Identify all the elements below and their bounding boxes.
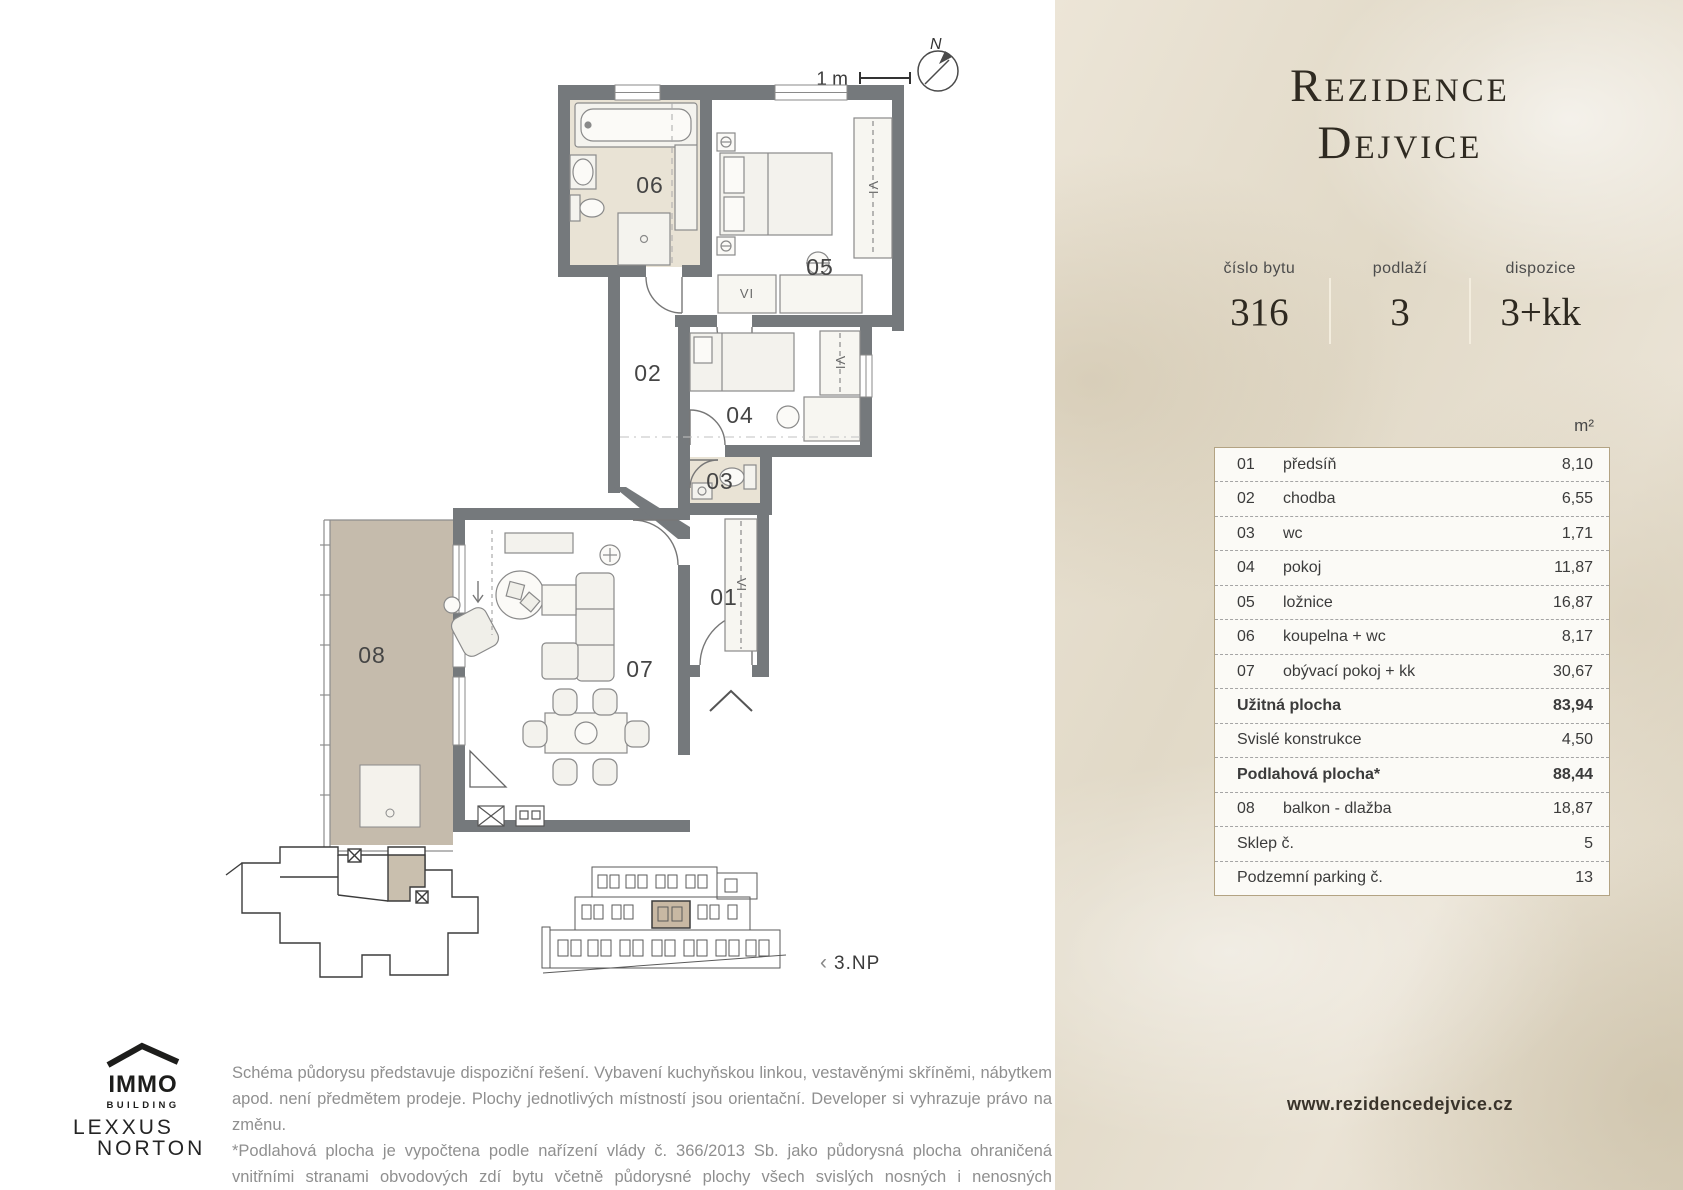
area-table-row: Svislé konstrukce4,50 xyxy=(1215,724,1609,758)
project-title: Rezidence Dejvice xyxy=(1190,58,1610,173)
disclaimer-paragraph-1: Schéma půdorysu představuje dispoziční ř… xyxy=(232,1060,1052,1138)
area-table-row: 02chodba6,55 xyxy=(1215,482,1609,516)
room-number: 04 xyxy=(1237,559,1283,577)
room-label-07: 07 xyxy=(626,656,654,682)
room-area-value: 30,67 xyxy=(1553,663,1593,681)
area-table-row: Podlahová plocha*88,44 xyxy=(1215,758,1609,792)
room-name: chodba xyxy=(1283,490,1336,508)
living-room-furniture xyxy=(444,533,649,785)
floor-value: 3 xyxy=(1331,290,1470,335)
disclaimer-paragraph-2: *Podlahová plocha je vypočtena podle nař… xyxy=(232,1138,1052,1190)
room-area-value: 8,17 xyxy=(1562,628,1593,646)
room-name: Sklep č. xyxy=(1237,835,1294,853)
floor-plan: 1 m N xyxy=(220,25,980,985)
area-table-row: 06koupelna + wc8,17 xyxy=(1215,620,1609,654)
area-table-row: Podzemní parking č.13 xyxy=(1215,862,1609,895)
room-area-value: 6,55 xyxy=(1562,490,1593,508)
room-area-value: 5 xyxy=(1584,835,1593,853)
roof-icon xyxy=(105,1042,181,1068)
area-table-row: 01předsíň8,10 xyxy=(1215,448,1609,482)
section-triangle xyxy=(470,751,506,787)
area-table-row: 04pokoj11,87 xyxy=(1215,551,1609,585)
immo-logo-name: IMMO xyxy=(98,1071,188,1099)
room-name: Podlahová plocha* xyxy=(1237,766,1380,784)
room-label-06: 06 xyxy=(636,172,664,198)
room-number: 01 xyxy=(1237,456,1283,474)
apartment-info-row: číslo bytu 316 podlaží 3 dispozice 3+kk xyxy=(1190,260,1610,344)
room-name: balkon - dlažba xyxy=(1283,800,1392,818)
layout-value: 3+kk xyxy=(1471,290,1610,335)
lexxus-logo-line2: NORTON xyxy=(97,1137,205,1161)
room-label-03: 03 xyxy=(706,468,734,494)
floorplate-overview xyxy=(226,847,478,977)
disclaimer-text: Schéma půdorysu představuje dispoziční ř… xyxy=(232,1060,1052,1190)
immo-logo-tagline: BUILDING xyxy=(98,1100,188,1111)
area-table-row: Užitná plocha83,94 xyxy=(1215,689,1609,723)
building-elevation xyxy=(542,867,786,973)
floor-block: podlaží 3 xyxy=(1331,260,1470,344)
room-area-value: 13 xyxy=(1575,869,1593,887)
room-number: 08 xyxy=(1237,800,1283,818)
room-name: Užitná plocha xyxy=(1237,697,1341,715)
direction-arrow xyxy=(473,581,483,602)
area-table: 01předsíň8,1002chodba6,5503wc1,7104pokoj… xyxy=(1214,447,1610,896)
room-area-value: 18,87 xyxy=(1553,800,1593,818)
apartment-number-label: číslo bytu xyxy=(1190,260,1329,278)
room-name: koupelna + wc xyxy=(1283,628,1386,646)
room-name: obývací pokoj + kk xyxy=(1283,663,1415,681)
room-name: ložnice xyxy=(1283,594,1333,612)
immo-building-logo: IMMO BUILDING xyxy=(98,1042,188,1111)
area-table-row: 05ložnice16,87 xyxy=(1215,586,1609,620)
lexxus-norton-logo: LEXXUS NORTON xyxy=(73,1116,205,1161)
area-table-row: 08balkon - dlažba18,87 xyxy=(1215,793,1609,827)
floor-label: podlaží xyxy=(1331,260,1470,278)
entrance-chevron-icon xyxy=(710,691,752,711)
apartment-number-value: 316 xyxy=(1190,290,1329,335)
project-title-line2: Dejvice xyxy=(1190,115,1610,172)
layout-label: dispozice xyxy=(1471,260,1610,278)
floor-plan-svg: 1 m N xyxy=(220,25,980,985)
balcony-planter xyxy=(360,765,420,827)
room-label-05: 05 xyxy=(806,254,834,280)
room-number: 05 xyxy=(1237,594,1283,612)
area-unit-header: m² xyxy=(1214,416,1594,436)
floor-level-label: 3.NP xyxy=(834,953,880,974)
room-area-value: 88,44 xyxy=(1553,766,1593,784)
room-area-value: 83,94 xyxy=(1553,697,1593,715)
room-number: 03 xyxy=(1237,525,1283,543)
room-area-value: 4,50 xyxy=(1562,731,1593,749)
room-label-02: 02 xyxy=(634,360,662,386)
room-area-value: 11,87 xyxy=(1554,559,1593,577)
room-number: 07 xyxy=(1237,663,1283,681)
bedroom-furniture xyxy=(717,118,892,313)
compass-icon: N xyxy=(918,36,958,91)
area-table-row: 03wc1,71 xyxy=(1215,517,1609,551)
room04-furniture xyxy=(690,331,860,441)
wardrobe-label: VI xyxy=(740,286,754,301)
room-label-01: 01 xyxy=(710,584,738,610)
room-name: předsíň xyxy=(1283,456,1336,474)
room-name: pokoj xyxy=(1283,559,1321,577)
floor-nav-arrow: ‹ xyxy=(820,951,827,974)
wardrobe-label: VI xyxy=(866,181,881,195)
project-title-line1: Rezidence xyxy=(1190,58,1610,115)
room-area-value: 8,10 xyxy=(1562,456,1593,474)
room-area-value: 1,71 xyxy=(1562,525,1593,543)
room-name: Svislé konstrukce xyxy=(1237,731,1362,749)
room-label-08: 08 xyxy=(358,642,386,668)
compass-north-label: N xyxy=(930,36,942,53)
room-name: Podzemní parking č. xyxy=(1237,869,1383,887)
area-table-row: Sklep č.5 xyxy=(1215,827,1609,861)
wardrobe-label: VI xyxy=(833,356,848,370)
apartment-number-block: číslo bytu 316 xyxy=(1190,260,1329,344)
room-area-value: 16,87 xyxy=(1553,594,1593,612)
room-number: 06 xyxy=(1237,628,1283,646)
room-number: 02 xyxy=(1237,490,1283,508)
floorplan-sheet: 1 m N xyxy=(0,0,1683,1190)
room-label-04: 04 xyxy=(726,402,754,428)
room-name: wc xyxy=(1283,525,1303,543)
area-table-row: 07obývací pokoj + kk30,67 xyxy=(1215,655,1609,689)
website-url: www.rezidencedejvice.cz xyxy=(1190,1094,1610,1115)
layout-block: dispozice 3+kk xyxy=(1471,260,1610,344)
